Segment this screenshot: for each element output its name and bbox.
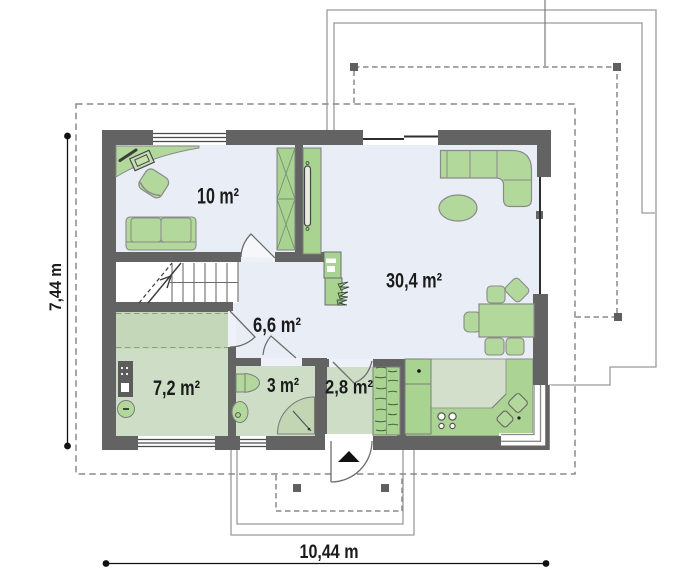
svg-text:10 m²: 10 m² [197, 184, 239, 209]
svg-text:3 m²: 3 m² [267, 375, 299, 397]
svg-text:10,44 m: 10,44 m [300, 542, 359, 563]
svg-text:6,6 m²: 6,6 m² [253, 314, 301, 337]
svg-text:7,44 m: 7,44 m [46, 263, 65, 311]
svg-text:7,2 m²: 7,2 m² [153, 377, 200, 400]
svg-text:2,8 m²: 2,8 m² [325, 378, 373, 399]
svg-text:30,4 m²: 30,4 m² [386, 270, 442, 293]
